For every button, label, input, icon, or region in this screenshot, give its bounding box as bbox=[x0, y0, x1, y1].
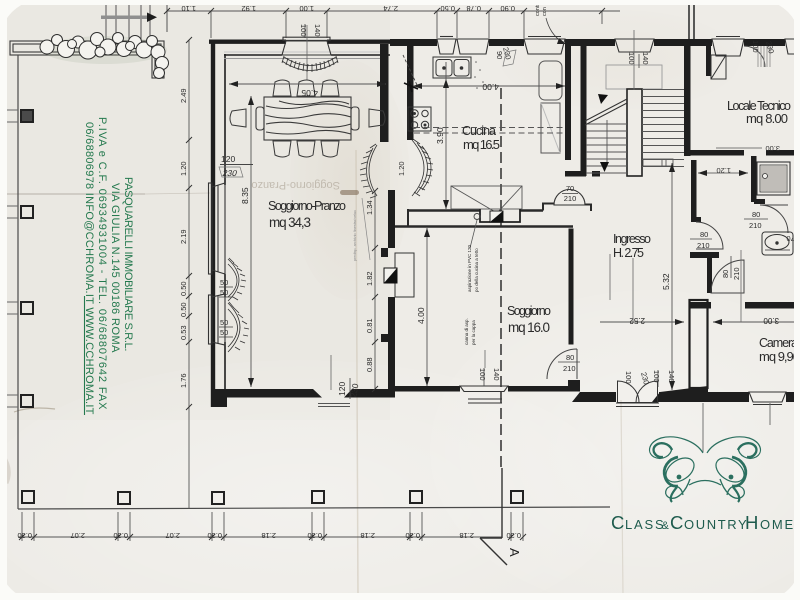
svg-text:Soggiorno: Soggiorno bbox=[507, 304, 551, 318]
svg-text:1.10: 1.10 bbox=[181, 4, 196, 13]
svg-text:100: 100 bbox=[478, 368, 487, 381]
svg-text:70: 70 bbox=[566, 184, 574, 193]
svg-text:1.20: 1.20 bbox=[716, 166, 731, 175]
svg-text:3.90: 3.90 bbox=[435, 127, 445, 144]
svg-text:mq 16.0: mq 16.0 bbox=[508, 320, 550, 335]
svg-text:50: 50 bbox=[220, 328, 228, 337]
svg-text:3.00: 3.00 bbox=[765, 144, 780, 153]
svg-text:Camera: Camera bbox=[759, 336, 798, 350]
svg-text:2.18: 2.18 bbox=[360, 531, 375, 540]
svg-text:0.30: 0.30 bbox=[113, 531, 128, 540]
svg-text:mq 16.5: mq 16.5 bbox=[463, 137, 500, 152]
svg-text:0.30: 0.30 bbox=[405, 531, 420, 540]
svg-text:Cucina: Cucina bbox=[462, 124, 496, 138]
svg-text:mq 9,90: mq 9,90 bbox=[759, 349, 800, 364]
svg-text:3.00: 3.00 bbox=[763, 316, 779, 325]
svg-text:LASS: LASS bbox=[625, 517, 665, 532]
svg-text:1.20: 1.20 bbox=[179, 161, 188, 176]
svg-text:Soggiorno-Pranzo: Soggiorno-Pranzo bbox=[268, 199, 346, 213]
svg-text:1.92: 1.92 bbox=[241, 4, 256, 13]
svg-text:2.18: 2.18 bbox=[261, 531, 276, 540]
svg-text:contr: contr bbox=[535, 4, 541, 16]
svg-text:4.00: 4.00 bbox=[482, 82, 499, 92]
svg-text:80: 80 bbox=[721, 270, 730, 278]
svg-text:5.32: 5.32 bbox=[661, 273, 671, 290]
svg-text:H: H bbox=[745, 512, 758, 533]
svg-text:per la cappa: per la cappa bbox=[471, 320, 476, 345]
svg-text:140: 140 bbox=[641, 52, 650, 65]
svg-text:120: 120 bbox=[221, 154, 235, 164]
svg-text:2.18: 2.18 bbox=[459, 531, 474, 540]
svg-text:100: 100 bbox=[627, 52, 636, 65]
svg-text:140: 140 bbox=[313, 24, 322, 37]
svg-text:0.30: 0.30 bbox=[207, 531, 222, 540]
svg-text:0.88: 0.88 bbox=[365, 357, 374, 372]
svg-text:50: 50 bbox=[220, 278, 228, 287]
svg-text:2.07: 2.07 bbox=[165, 531, 180, 540]
svg-text:100: 100 bbox=[652, 370, 661, 383]
svg-text:80: 80 bbox=[566, 353, 574, 362]
svg-text:0.30: 0.30 bbox=[17, 531, 32, 540]
svg-text:0.50: 0.50 bbox=[179, 302, 188, 317]
svg-text:C: C bbox=[670, 512, 683, 533]
svg-text:230: 230 bbox=[222, 168, 239, 178]
svg-text:80: 80 bbox=[700, 230, 708, 239]
svg-text:0.53: 0.53 bbox=[179, 325, 188, 340]
svg-text:OUNTRY: OUNTRY bbox=[684, 517, 748, 532]
svg-text:predisp. archivio finestra/ve: predisp. archivio finestra/velux bbox=[353, 210, 357, 261]
svg-text:2.19: 2.19 bbox=[179, 229, 188, 244]
svg-text:po della cucina a tetto: po della cucina a tetto bbox=[474, 248, 479, 292]
svg-text:4.00: 4.00 bbox=[416, 307, 426, 324]
svg-text:1.34: 1.34 bbox=[365, 200, 374, 215]
svg-text:aspirazione in PVC 120: aspirazione in PVC 120 bbox=[467, 244, 472, 292]
svg-text:210: 210 bbox=[749, 221, 762, 230]
svg-text:P.IVA e C.F. 06934931004 - TEL: P.IVA e C.F. 06934931004 - TEL. 06/68807… bbox=[96, 117, 108, 410]
svg-text:0.30: 0.30 bbox=[307, 531, 322, 540]
svg-text:0.50: 0.50 bbox=[179, 281, 188, 296]
svg-text:PASQUARELLI IMMOBILIARE S.R.L.: PASQUARELLI IMMOBILIARE S.R.L. bbox=[122, 177, 134, 352]
svg-text:canna di asp.: canna di asp. bbox=[464, 318, 469, 345]
svg-text:100: 100 bbox=[624, 371, 633, 384]
svg-text:mq 8.00: mq 8.00 bbox=[746, 111, 788, 126]
svg-text:VIA GIULIA N.145 00186 ROMA: VIA GIULIA N.145 00186 ROMA bbox=[109, 183, 121, 353]
svg-text:50: 50 bbox=[220, 318, 228, 327]
svg-text:mq 34,3: mq 34,3 bbox=[269, 215, 311, 230]
svg-text:1.76: 1.76 bbox=[179, 373, 188, 388]
svg-text:&: & bbox=[662, 520, 670, 532]
svg-text:210: 210 bbox=[697, 241, 710, 250]
svg-text:Soggiorno-Pranzo: Soggiorno-Pranzo bbox=[251, 179, 340, 191]
svg-text:210: 210 bbox=[563, 364, 576, 373]
svg-text:A: A bbox=[507, 548, 522, 557]
svg-text:80: 80 bbox=[752, 210, 760, 219]
svg-text:140: 140 bbox=[667, 370, 676, 383]
svg-text:C: C bbox=[611, 512, 624, 533]
svg-text:0.81: 0.81 bbox=[365, 318, 374, 333]
svg-text:2.49: 2.49 bbox=[179, 88, 188, 103]
svg-text:120: 120 bbox=[337, 382, 347, 396]
svg-text:50: 50 bbox=[220, 288, 228, 297]
svg-text:H. 2.75: H. 2.75 bbox=[613, 246, 644, 260]
svg-text:2.52: 2.52 bbox=[629, 316, 645, 325]
svg-text:2.74: 2.74 bbox=[383, 4, 398, 13]
svg-text:con: con bbox=[542, 7, 548, 16]
svg-text:1.00: 1.00 bbox=[299, 4, 314, 13]
svg-text:0.78: 0.78 bbox=[466, 4, 481, 13]
svg-text:Ingresso: Ingresso bbox=[613, 232, 651, 246]
svg-text:0.30: 0.30 bbox=[506, 531, 521, 540]
svg-text:210: 210 bbox=[564, 194, 577, 203]
svg-text:0.90: 0.90 bbox=[500, 4, 515, 13]
svg-text:100: 100 bbox=[751, 40, 760, 53]
svg-text:4.05: 4.05 bbox=[301, 88, 318, 98]
svg-text:210: 210 bbox=[732, 267, 741, 280]
svg-text:8.35: 8.35 bbox=[240, 187, 250, 204]
svg-text:1.20: 1.20 bbox=[397, 161, 406, 176]
svg-text:0.50: 0.50 bbox=[440, 4, 455, 13]
svg-text:2.07: 2.07 bbox=[70, 531, 85, 540]
svg-text:140: 140 bbox=[492, 368, 501, 381]
svg-text:1.82: 1.82 bbox=[365, 271, 374, 286]
